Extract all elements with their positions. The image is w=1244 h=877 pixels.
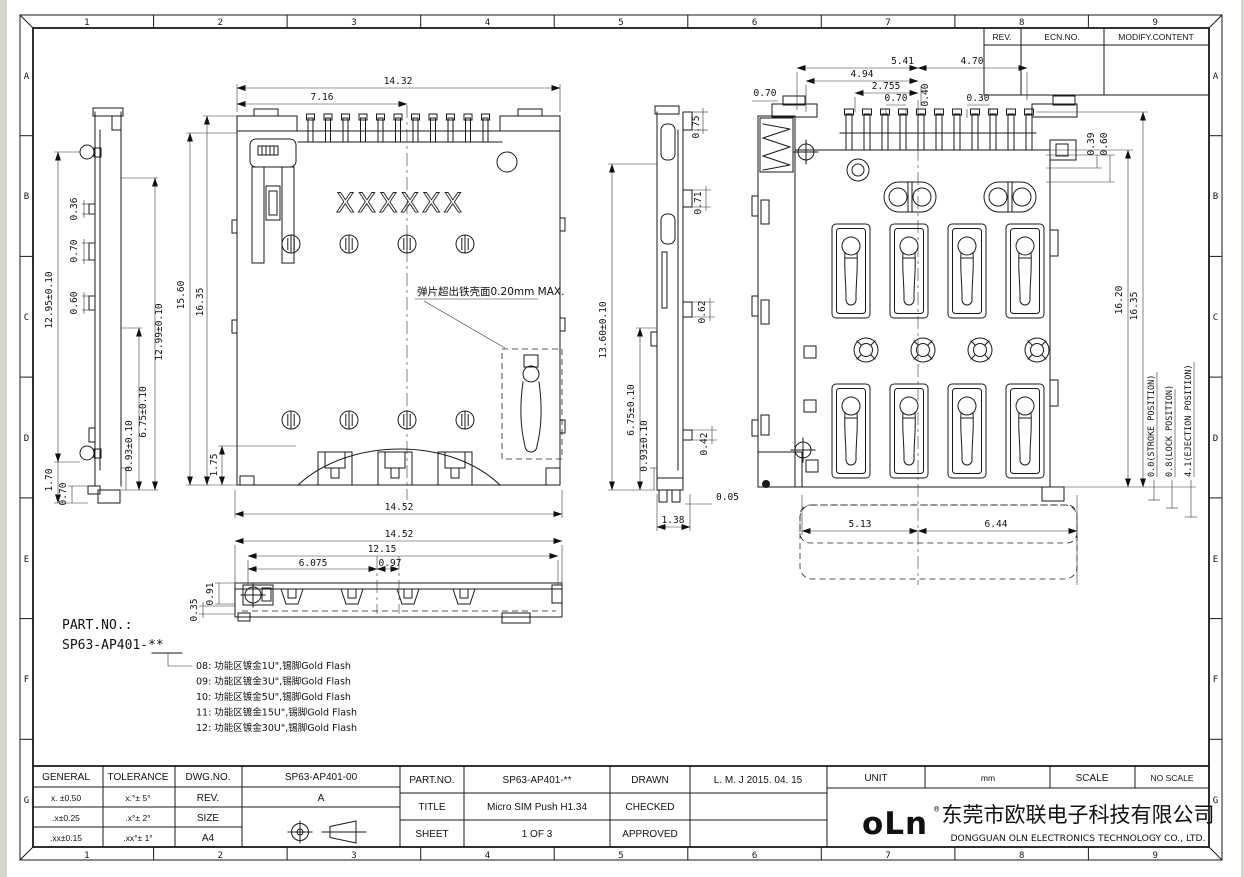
ecn-modify-header: MODIFY.CONTENT bbox=[1118, 32, 1193, 42]
tolerance-linear: .xx±0.15 bbox=[50, 833, 82, 843]
view-bottom: 14.52 12.15 6.075 0.97 0.91 0.35 bbox=[189, 529, 562, 623]
zone-row: G bbox=[24, 796, 29, 806]
lock-position-label: 0.8(LOCK POSITION) bbox=[1165, 385, 1175, 477]
zone-col: 2 bbox=[218, 851, 223, 861]
ecn-table: REV. ECN.NO. MODIFY.CONTENT bbox=[984, 28, 1209, 95]
title-block: GENERAL TOLERANCE DWG.NO. SP63-AP401-00 … bbox=[33, 766, 1215, 847]
zone-col: 8 bbox=[1019, 851, 1024, 861]
part-no-value: SP63-AP401-** bbox=[503, 775, 572, 786]
zone-row: B bbox=[1213, 192, 1218, 202]
plating-option: 10: 功能区镀金5U",锡脚Gold Flash bbox=[196, 691, 351, 703]
eject-spring bbox=[763, 124, 790, 170]
sheet-label: SHEET bbox=[415, 829, 448, 840]
dim-label: 0.60 bbox=[1099, 132, 1110, 155]
view-side-mid: 13.60±0.10 6.75±0.10 0.93±0.10 0.75 0.71… bbox=[598, 106, 739, 531]
dim-label: 0.62 bbox=[697, 301, 708, 324]
bottom-contact-fingers bbox=[318, 452, 472, 485]
dwg-no-label: DWG.NO. bbox=[186, 772, 231, 783]
registered-mark-icon: ® bbox=[934, 805, 940, 815]
dims-back-view: 0.70 5.41 4.70 4.94 2.755 0.70 0.40 0.30… bbox=[752, 56, 1197, 585]
view-side-left: 12.95±0.10 1.70 0.70 0.36 0.70 0.60 12.9… bbox=[44, 108, 165, 505]
dim-label: 5.13 bbox=[849, 519, 872, 530]
tolerance-angular: .xx°± 1° bbox=[123, 833, 152, 843]
dim-label: 6.75±0.10 bbox=[626, 384, 637, 436]
zone-col: 1 bbox=[84, 18, 89, 28]
rev-value: A bbox=[318, 793, 325, 804]
dim-label: 0.40 bbox=[920, 83, 931, 106]
plating-option: 12: 功能区镀金30U",锡脚Gold Flash bbox=[196, 722, 357, 734]
dim-label: 1.38 bbox=[662, 515, 685, 526]
dim-label: 0.75 bbox=[691, 116, 702, 139]
part-no-label: PART.NO.: bbox=[62, 618, 132, 633]
dim-label: 4.94 bbox=[851, 69, 874, 80]
projection-symbol bbox=[288, 821, 366, 843]
zone-col: 5 bbox=[618, 851, 623, 861]
dim-label: 14.32 bbox=[384, 76, 413, 87]
dim-label: 6.44 bbox=[985, 519, 1008, 530]
title-label: TITLE bbox=[418, 802, 446, 813]
scale-value: NO SCALE bbox=[1151, 773, 1194, 783]
dim-label: 0.93±0.10 bbox=[124, 420, 135, 472]
dim-label: 12.95±0.10 bbox=[44, 271, 55, 328]
plating-option: 08: 功能区镀金1U",锡脚Gold Flash bbox=[196, 660, 351, 672]
zone-col: 4 bbox=[485, 851, 490, 861]
dim-label: 0.93±0.10 bbox=[639, 420, 650, 472]
tolerance-label: TOLERANCE bbox=[108, 772, 169, 783]
zone-col: 4 bbox=[485, 18, 490, 28]
zone-col: 7 bbox=[885, 18, 890, 28]
push-rod bbox=[250, 139, 296, 263]
zone-row: E bbox=[24, 555, 29, 565]
spring-contact-detail bbox=[521, 355, 541, 452]
contact-pins-comb-back bbox=[845, 109, 1034, 150]
view-top: XXXXXX 弹片超出铁壳面0.20mm MAX. 14.32 7.16 15.… bbox=[176, 76, 565, 518]
dims-bottom-view: 14.52 12.15 6.075 0.97 0.91 0.35 bbox=[189, 529, 562, 621]
zone-row: F bbox=[1213, 675, 1218, 685]
title-value: Micro SIM Push H1.34 bbox=[487, 802, 587, 813]
dim-label: 0.97 bbox=[379, 558, 402, 569]
dim-label: 0.70 bbox=[754, 88, 777, 99]
dim-label: 0.70 bbox=[58, 482, 69, 505]
solder-feet bbox=[281, 589, 475, 604]
dim-label: 15.60 bbox=[176, 280, 187, 309]
zone-col: 6 bbox=[752, 851, 757, 861]
zone-row: C bbox=[1213, 313, 1218, 323]
tolerance-linear: x. ±0.50 bbox=[51, 793, 81, 803]
dim-label: 0.70 bbox=[885, 93, 908, 104]
part-no-value: SP63-AP401-** bbox=[62, 638, 164, 653]
dim-label: 16.20 bbox=[1114, 285, 1125, 314]
dims-side-left: 12.95±0.10 1.70 0.70 0.36 0.70 0.60 12.9… bbox=[44, 152, 165, 505]
size-value: A4 bbox=[202, 833, 215, 844]
zone-row: A bbox=[1213, 72, 1219, 82]
dim-label: 0.70 bbox=[69, 239, 80, 262]
rev-label: REV. bbox=[197, 793, 219, 804]
dim-label: 12.99±0.10 bbox=[154, 303, 165, 360]
sim-card-eject-outline bbox=[800, 505, 1077, 579]
zone-row: C bbox=[24, 313, 29, 323]
dim-label: 16.35 bbox=[1129, 292, 1140, 321]
zone-col: 6 bbox=[752, 18, 757, 28]
dim-label: 16.35 bbox=[195, 288, 206, 317]
zone-row: D bbox=[24, 434, 29, 444]
zone-col: 9 bbox=[1152, 18, 1157, 28]
dim-label: 6.75±0.10 bbox=[138, 386, 149, 438]
zone-col: 3 bbox=[351, 18, 356, 28]
contact-pins-comb bbox=[307, 114, 490, 142]
zone-col: 9 bbox=[1152, 851, 1157, 861]
company-name-en: DONGGUAN OLN ELECTRONICS TECHNOLOGY CO.,… bbox=[950, 833, 1205, 844]
zone-col: 8 bbox=[1019, 18, 1024, 28]
dim-label: 0.39 bbox=[1086, 132, 1097, 155]
dim-label: 5.41 bbox=[891, 56, 914, 67]
ecn-rev-header: REV. bbox=[992, 32, 1011, 42]
drawing-sheet: 1 2 3 4 5 6 7 8 9 1 2 3 4 5 6 7 8 9 A B … bbox=[0, 0, 1244, 877]
dim-label: 7.16 bbox=[311, 92, 334, 103]
part-note: PART.NO.: SP63-AP401-** 08: 功能区镀金1U",锡脚G… bbox=[62, 618, 357, 734]
sheet-frame: 1 2 3 4 5 6 7 8 9 1 2 3 4 5 6 7 8 9 A B … bbox=[20, 15, 1222, 861]
tolerance-angular: x.°± 5° bbox=[125, 793, 150, 803]
sim-card-lock-outline bbox=[800, 505, 1077, 543]
oln-logo: oLn bbox=[862, 806, 928, 842]
dim-label: 0.91 bbox=[205, 582, 216, 605]
stroke-position-label: 0.0(STROKE POSITION) bbox=[1147, 375, 1157, 477]
dim-label: 13.60±0.10 bbox=[598, 301, 609, 358]
drawn-value: L. M. J 2015. 04. 15 bbox=[714, 775, 803, 786]
marking-area: XXXXXX bbox=[336, 188, 465, 219]
zone-row: B bbox=[24, 192, 29, 202]
plating-option: 11: 功能区镀金15U",锡脚Gold Flash bbox=[196, 707, 357, 719]
cad-drawing: 1 2 3 4 5 6 7 8 9 1 2 3 4 5 6 7 8 9 A B … bbox=[0, 0, 1244, 877]
dim-label: 0.36 bbox=[69, 197, 80, 220]
sheet-value: 1 OF 3 bbox=[522, 829, 553, 840]
dim-label: 6.075 bbox=[299, 558, 328, 569]
ejection-position-label: 4.1(EJECTION POSITION) bbox=[1184, 364, 1194, 477]
dim-label: 1.75 bbox=[209, 454, 220, 477]
zone-row: E bbox=[1213, 555, 1218, 565]
size-label: SIZE bbox=[197, 813, 220, 824]
dim-label: 0.30 bbox=[967, 93, 990, 104]
part-no-label: PART.NO. bbox=[409, 775, 454, 786]
scale-label: SCALE bbox=[1076, 773, 1109, 784]
dim-label: 0.60 bbox=[69, 291, 80, 314]
spring-note: 弹片超出铁壳面0.20mm MAX. bbox=[417, 285, 564, 298]
general-label: GENERAL bbox=[42, 772, 90, 783]
checked-label: CHECKED bbox=[626, 802, 675, 813]
approved-label: APPROVED bbox=[622, 829, 678, 840]
ecn-no-header: ECN.NO. bbox=[1044, 32, 1079, 42]
zone-row: D bbox=[1213, 434, 1218, 444]
dim-label: 14.52 bbox=[385, 529, 414, 540]
dwg-no-value: SP63-AP401-00 bbox=[285, 772, 358, 783]
dims-side-mid: 13.60±0.10 6.75±0.10 0.93±0.10 0.75 0.71… bbox=[598, 108, 739, 531]
dim-label: 0.05 bbox=[716, 492, 739, 503]
unit-label: UNIT bbox=[864, 773, 887, 784]
company-name-cn: 东莞市欧联电子科技有限公司 bbox=[942, 803, 1215, 827]
zone-col: 3 bbox=[351, 851, 356, 861]
dim-label: 0.71 bbox=[693, 191, 704, 214]
zone-col: 1 bbox=[84, 851, 89, 861]
dim-label: 12.15 bbox=[368, 544, 397, 555]
dim-label: 4.70 bbox=[961, 56, 984, 67]
dim-label: 0.35 bbox=[189, 599, 200, 622]
dim-label: 1.70 bbox=[44, 468, 55, 491]
dim-label: 0.42 bbox=[699, 433, 710, 456]
zone-row: A bbox=[24, 72, 30, 82]
dim-label: 2.755 bbox=[872, 81, 901, 92]
tolerance-angular: .x°± 2° bbox=[125, 813, 150, 823]
dim-label: 14.52 bbox=[385, 502, 414, 513]
plating-option: 09: 功能区镀金3U",锡脚Gold Flash bbox=[196, 676, 351, 688]
zone-col: 7 bbox=[885, 851, 890, 861]
zone-col: 2 bbox=[218, 18, 223, 28]
drawn-label: DRAWN bbox=[631, 775, 668, 786]
view-back: 0.70 5.41 4.70 4.94 2.755 0.70 0.40 0.30… bbox=[752, 56, 1197, 585]
unit-value: mm bbox=[981, 773, 995, 783]
zone-col: 5 bbox=[618, 18, 623, 28]
zone-row: F bbox=[24, 675, 29, 685]
tolerance-linear: .x±0.25 bbox=[52, 813, 80, 823]
